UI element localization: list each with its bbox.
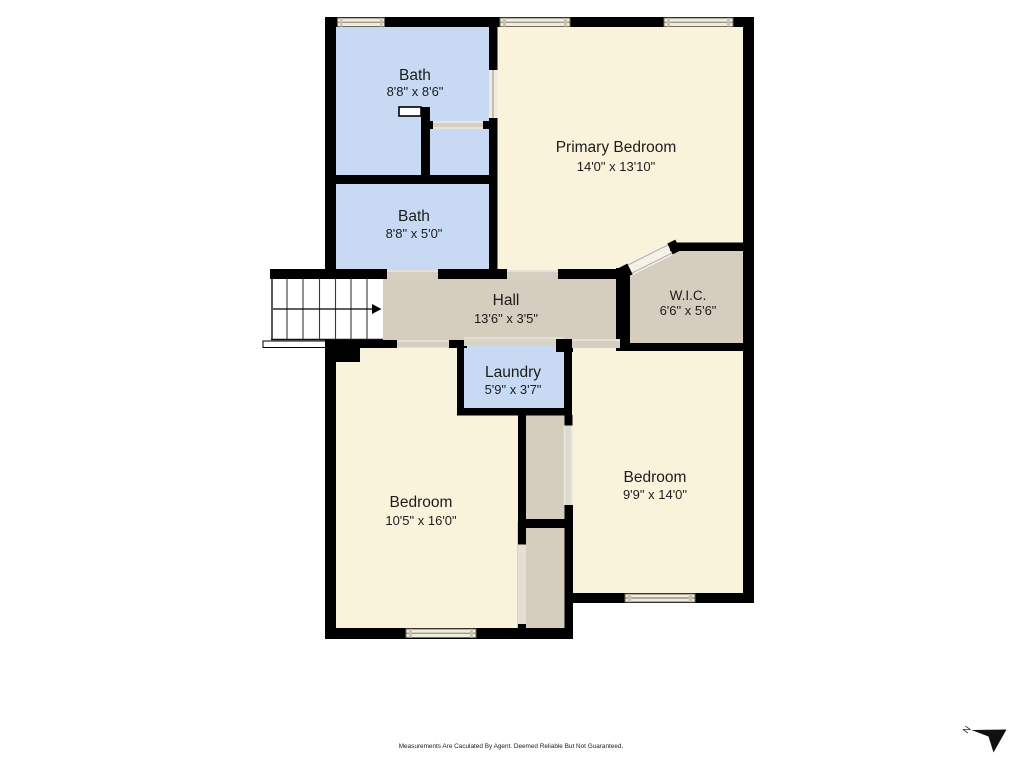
svg-text:W.I.C.: W.I.C.	[670, 288, 707, 303]
svg-text:Bath: Bath	[398, 208, 430, 225]
svg-text:5'9" x 3'7": 5'9" x 3'7"	[485, 382, 542, 397]
svg-text:Primary Bedroom: Primary Bedroom	[556, 139, 677, 156]
svg-text:8'8" x 5'0": 8'8" x 5'0"	[386, 226, 443, 241]
svg-text:Measurements Are Caculated By: Measurements Are Caculated By Agent. Dee…	[399, 743, 624, 750]
svg-text:6'6" x 5'6": 6'6" x 5'6"	[660, 303, 717, 318]
svg-text:Bath: Bath	[399, 67, 431, 84]
svg-text:14'0" x 13'10": 14'0" x 13'10"	[577, 159, 656, 174]
svg-text:Bedroom: Bedroom	[624, 469, 687, 486]
svg-text:9'9" x 14'0": 9'9" x 14'0"	[623, 487, 687, 502]
svg-text:8'8" x 8'6": 8'8" x 8'6"	[387, 84, 444, 99]
svg-text:10'5" x 16'0": 10'5" x 16'0"	[385, 513, 457, 528]
svg-text:Hall: Hall	[493, 292, 520, 309]
svg-text:Laundry: Laundry	[485, 364, 541, 381]
svg-text:Bedroom: Bedroom	[390, 494, 453, 511]
svg-text:13'6" x 3'5": 13'6" x 3'5"	[474, 311, 538, 326]
